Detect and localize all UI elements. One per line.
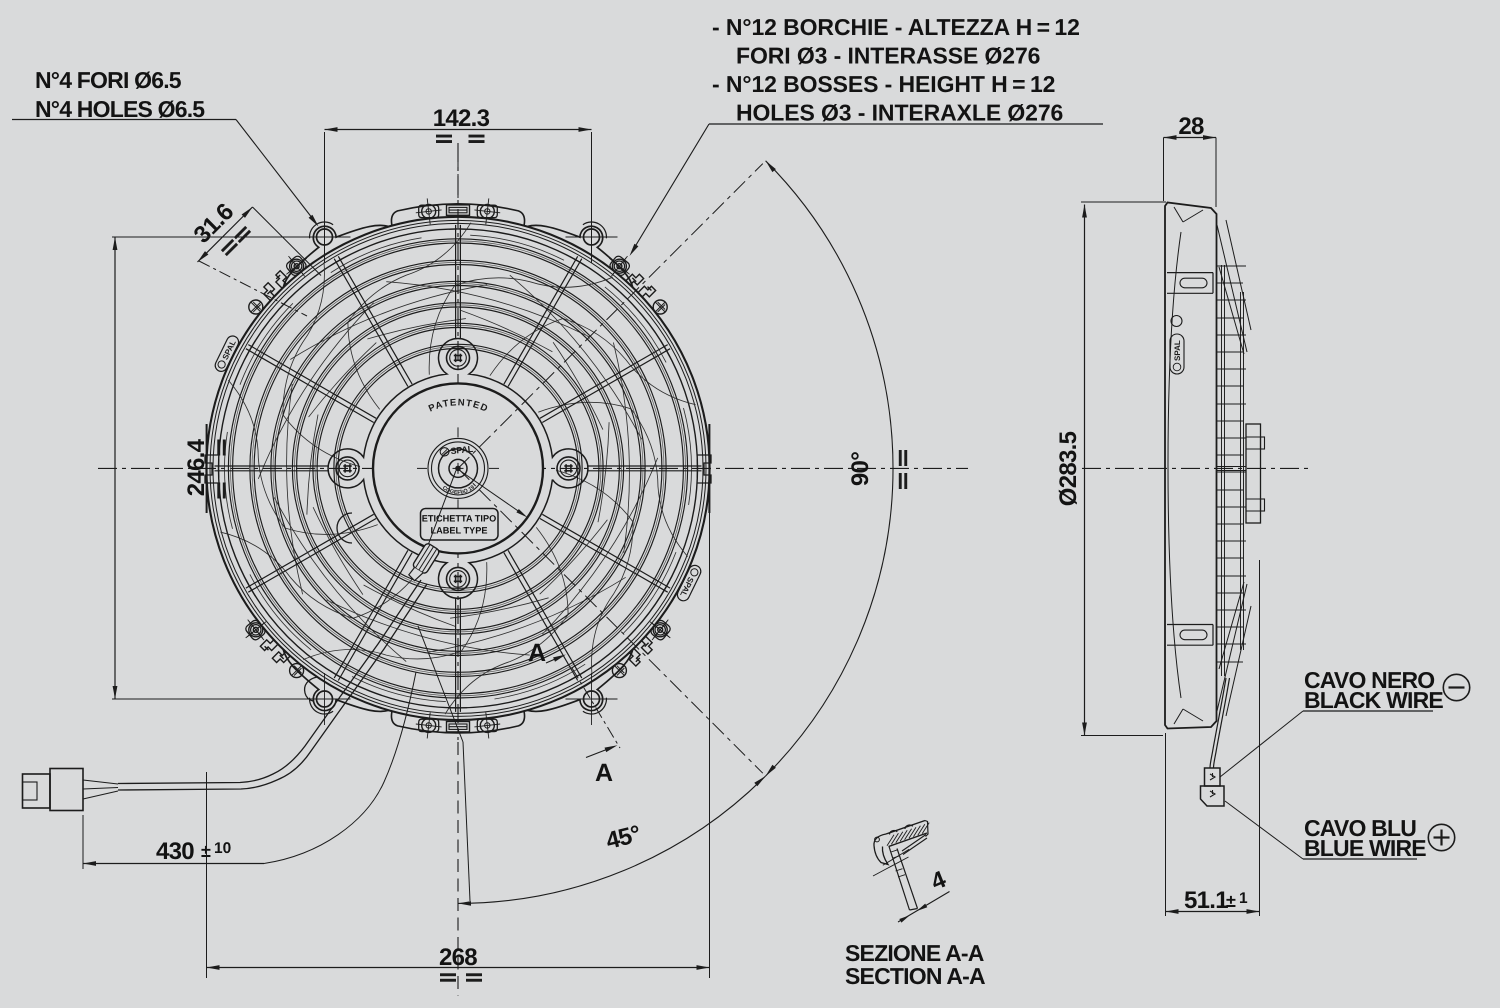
svg-text:51.1: 51.1 <box>1184 887 1228 914</box>
svg-text:A: A <box>528 639 546 667</box>
svg-text:90°: 90° <box>847 452 874 486</box>
svg-text:246.4: 246.4 <box>183 438 210 496</box>
svg-text:ETICHETTA TIPO: ETICHETTA TIPO <box>422 514 497 524</box>
svg-text:BLACK WIRE: BLACK WIRE <box>1304 687 1443 713</box>
svg-text:430: 430 <box>156 838 194 865</box>
svg-text:A: A <box>595 759 613 787</box>
svg-text:10: 10 <box>214 840 231 857</box>
svg-text:- N°12 BORCHIE - ALTEZZA H = 1: - N°12 BORCHIE - ALTEZZA H = 12 <box>712 14 1080 40</box>
svg-text:1: 1 <box>1239 890 1248 907</box>
svg-text:28: 28 <box>1178 113 1204 140</box>
svg-text:SECTION A-A: SECTION A-A <box>845 963 985 989</box>
svg-text:N°4 FORI Ø6.5: N°4 FORI Ø6.5 <box>35 67 182 93</box>
svg-text:SPAL: SPAL <box>1173 340 1182 361</box>
svg-text:- N°12 BOSSES - HEIGHT H = 12: - N°12 BOSSES - HEIGHT H = 12 <box>712 71 1055 97</box>
svg-text:HOLES Ø3 - INTERAXLE Ø276: HOLES Ø3 - INTERAXLE Ø276 <box>736 100 1063 126</box>
svg-text:BLUE WIRE: BLUE WIRE <box>1304 835 1426 861</box>
svg-text:142.3: 142.3 <box>433 105 490 132</box>
svg-text:FORI Ø3 - INTERASSE Ø276: FORI Ø3 - INTERASSE Ø276 <box>736 43 1040 69</box>
svg-text:Ø283.5: Ø283.5 <box>1055 431 1082 506</box>
svg-text:N°4 HOLES Ø6.5: N°4 HOLES Ø6.5 <box>35 96 205 122</box>
svg-text:LABEL TYPE: LABEL TYPE <box>430 526 487 536</box>
svg-text:±: ± <box>1226 891 1236 911</box>
